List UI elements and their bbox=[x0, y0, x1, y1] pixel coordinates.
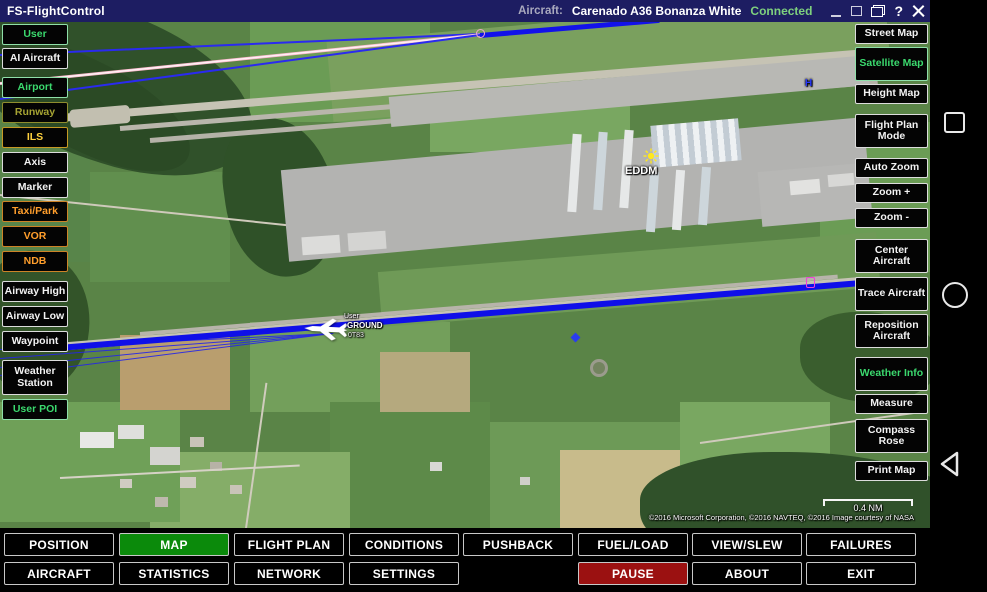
about-button[interactable]: ABOUT bbox=[692, 562, 802, 585]
sidebar-item-measure[interactable]: Measure bbox=[855, 394, 928, 414]
terminal-building bbox=[650, 118, 741, 168]
sidebar-item-zoom-in[interactable]: Zoom + bbox=[855, 183, 928, 203]
tab-pushback[interactable]: PUSHBACK bbox=[463, 533, 573, 556]
minimize-icon[interactable] bbox=[831, 7, 842, 18]
hangar bbox=[301, 235, 340, 256]
aircraft-tag-code: 0T83 bbox=[348, 332, 364, 339]
sidebar-item-marker[interactable]: Marker bbox=[2, 177, 68, 198]
satellite-map[interactable]: H User GROUND 0T83 bbox=[0, 22, 930, 528]
sidebar-item-airway-high[interactable]: Airway High bbox=[2, 281, 68, 302]
sidebar-item-user[interactable]: User bbox=[2, 24, 68, 45]
tab-flight-plan[interactable]: FLIGHT PLAN bbox=[234, 533, 344, 556]
tab-fuel-load[interactable]: FUEL/LOAD bbox=[578, 533, 688, 556]
tab-settings[interactable]: SETTINGS bbox=[349, 562, 459, 585]
sidebar-item-taxi-park[interactable]: Taxi/Park bbox=[2, 201, 68, 222]
sidebar-item-flight-plan-mode[interactable]: Flight Plan Mode bbox=[855, 114, 928, 148]
circular-structure bbox=[590, 359, 608, 377]
sidebar-item-ndb[interactable]: NDB bbox=[2, 251, 68, 272]
sidebar-item-reposition-aircraft[interactable]: Reposition Aircraft bbox=[855, 314, 928, 348]
titlebar-right-group: Aircraft: Carenado A36 Bonanza White Con… bbox=[518, 0, 925, 22]
sidebar-item-zoom-out[interactable]: Zoom - bbox=[855, 208, 928, 228]
aircraft-label: Aircraft: bbox=[518, 5, 563, 17]
runway-end-marker bbox=[806, 277, 815, 288]
tab-map[interactable]: MAP bbox=[119, 533, 229, 556]
exit-button[interactable]: EXIT bbox=[806, 562, 916, 585]
sidebar-item-center-aircraft[interactable]: Center Aircraft bbox=[855, 239, 928, 273]
restore-window-icon[interactable] bbox=[871, 5, 885, 17]
maximize-icon[interactable] bbox=[851, 6, 862, 16]
sidebar-item-runway[interactable]: Runway bbox=[2, 102, 68, 123]
tab-view-slew[interactable]: VIEW/SLEW bbox=[692, 533, 802, 556]
sidebar-item-compass-rose[interactable]: Compass Rose bbox=[855, 419, 928, 453]
tab-failures[interactable]: FAILURES bbox=[806, 533, 916, 556]
aircraft-name: Carenado A36 Bonanza White bbox=[572, 4, 742, 18]
town-cluster bbox=[60, 407, 300, 528]
scale-label: 0.4 NM bbox=[823, 503, 913, 513]
aircraft-tag-user: User bbox=[344, 313, 359, 320]
android-recents-icon[interactable] bbox=[944, 112, 965, 133]
cargo-building bbox=[789, 179, 820, 196]
ils-threshold-marker bbox=[476, 29, 485, 38]
sidebar-item-ai-aircraft[interactable]: AI Aircraft bbox=[2, 48, 68, 69]
tab-statistics[interactable]: STATISTICS bbox=[119, 562, 229, 585]
hangar bbox=[347, 231, 386, 252]
tab-position[interactable]: POSITION bbox=[4, 533, 114, 556]
tab-network[interactable]: NETWORK bbox=[234, 562, 344, 585]
sidebar-item-trace-aircraft[interactable]: Trace Aircraft bbox=[855, 277, 928, 311]
sidebar-item-weather-station[interactable]: Weather Station bbox=[2, 360, 68, 395]
village-building bbox=[520, 477, 530, 485]
sidebar-item-vor[interactable]: VOR bbox=[2, 226, 68, 247]
sidebar-item-axis[interactable]: Axis bbox=[2, 152, 68, 173]
sidebar-item-airport[interactable]: Airport bbox=[2, 77, 68, 98]
title-bar: FS-FlightControl Aircraft: Carenado A36 … bbox=[0, 0, 930, 22]
sidebar-item-satellite-map[interactable]: Satellite Map bbox=[855, 47, 928, 81]
close-icon[interactable] bbox=[912, 5, 925, 18]
airport-code-label: EDDM bbox=[625, 165, 657, 177]
village-building bbox=[430, 462, 442, 471]
connection-status: Connected bbox=[750, 4, 812, 18]
tab-conditions[interactable]: CONDITIONS bbox=[349, 533, 459, 556]
sidebar-item-airway-low[interactable]: Airway Low bbox=[2, 306, 68, 327]
sidebar-item-ils[interactable]: ILS bbox=[2, 127, 68, 148]
android-back-icon[interactable] bbox=[937, 450, 963, 483]
cargo-building bbox=[828, 173, 855, 187]
sidebar-item-height-map[interactable]: Height Map bbox=[855, 84, 928, 104]
sidebar-item-weather-info[interactable]: Weather Info bbox=[855, 357, 928, 391]
aircraft-tag-status: GROUND bbox=[347, 321, 383, 330]
help-icon[interactable]: ? bbox=[894, 4, 903, 18]
sidebar-item-print-map[interactable]: Print Map bbox=[855, 461, 928, 481]
pause-button[interactable]: PAUSE bbox=[578, 562, 688, 585]
sidebar-item-auto-zoom[interactable]: Auto Zoom bbox=[855, 158, 928, 178]
sidebar-item-waypoint[interactable]: Waypoint bbox=[2, 331, 68, 352]
app-title: FS-FlightControl bbox=[0, 4, 105, 18]
tab-aircraft[interactable]: AIRCRAFT bbox=[4, 562, 114, 585]
sidebar-item-user-poi[interactable]: User POI bbox=[2, 399, 68, 420]
sidebar-item-street-map[interactable]: Street Map bbox=[855, 24, 928, 44]
app-window: FS-FlightControl Aircraft: Carenado A36 … bbox=[0, 0, 930, 592]
android-home-icon[interactable] bbox=[942, 282, 968, 308]
map-copyright: ©2016 Microsoft Corporation, ©2016 NAVTE… bbox=[649, 513, 914, 522]
heliport-marker: H bbox=[805, 78, 812, 89]
